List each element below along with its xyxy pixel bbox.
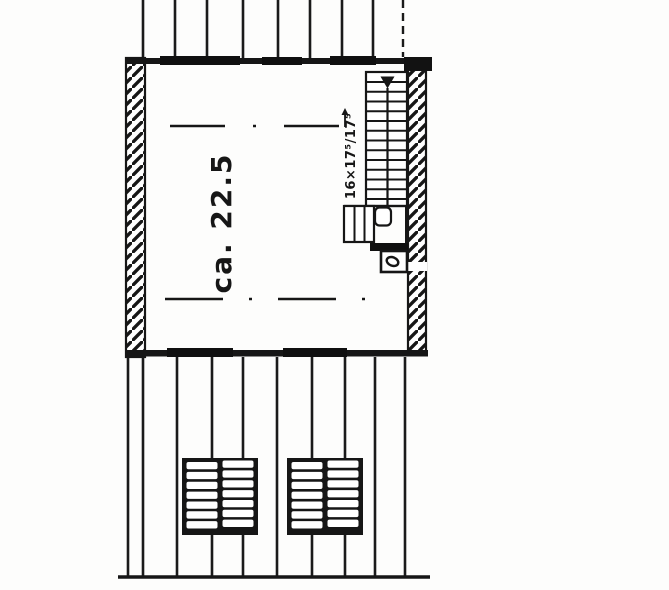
skylight-slat [292,472,323,479]
skylight-slat [223,470,254,477]
skylight-slat [292,501,323,508]
skylight-slat [223,510,254,517]
bottom-wall-blob [283,348,347,357]
skylight-slat [223,480,254,487]
skylight-slat [187,492,218,499]
skylight-slat [223,500,254,507]
skylight-slat [328,510,359,517]
top-wall-blob [160,56,240,65]
right-wall-hatched [408,64,426,355]
skylight-slat [328,461,359,468]
skylight-slat [187,521,218,528]
skylight-slat [292,462,323,469]
skylight-slat [187,501,218,508]
room-area-label: ca. 22.5 [205,153,238,294]
top-wall-blob [330,56,376,65]
skylight-slat [292,521,323,528]
skylight-slat [187,472,218,479]
skylight-right [287,458,363,535]
skylight-slat [292,482,323,489]
skylight-slat [187,482,218,489]
skylight-slat [223,490,254,497]
skylight-slat [328,490,359,497]
skylight-slat [223,461,254,468]
roof-rafter-lines-top [143,0,373,60]
skylight-slat [187,511,218,518]
skylight-slat [328,500,359,507]
left-wall-hatched [126,58,145,357]
skylight-slat [223,520,254,527]
skylight-slat [292,511,323,518]
skylight-left [182,458,258,535]
bottom-wall-blob [167,348,233,357]
skylight-slat [328,520,359,527]
top-wall-blob [262,57,302,65]
skylight-slat [187,462,218,469]
skylight-slat [328,470,359,477]
stair-first-step-curve [375,208,391,226]
roof-rafter-lines-bottom [128,357,405,577]
skylight-slat [328,480,359,487]
floorplan-drawing: ca. 22.5 16×17⁵/17⁵ [0,0,669,590]
chimney-box [381,251,407,272]
stair-dimension-label: 16×17⁵/17⁵ [344,113,359,199]
skylight-slat [292,492,323,499]
floorplan-scan: ca. 22.5 16×17⁵/17⁵ [0,0,669,590]
stair-entry-box [344,206,374,242]
right-wall-gap [407,262,427,271]
top-right-corner-block [404,57,432,71]
